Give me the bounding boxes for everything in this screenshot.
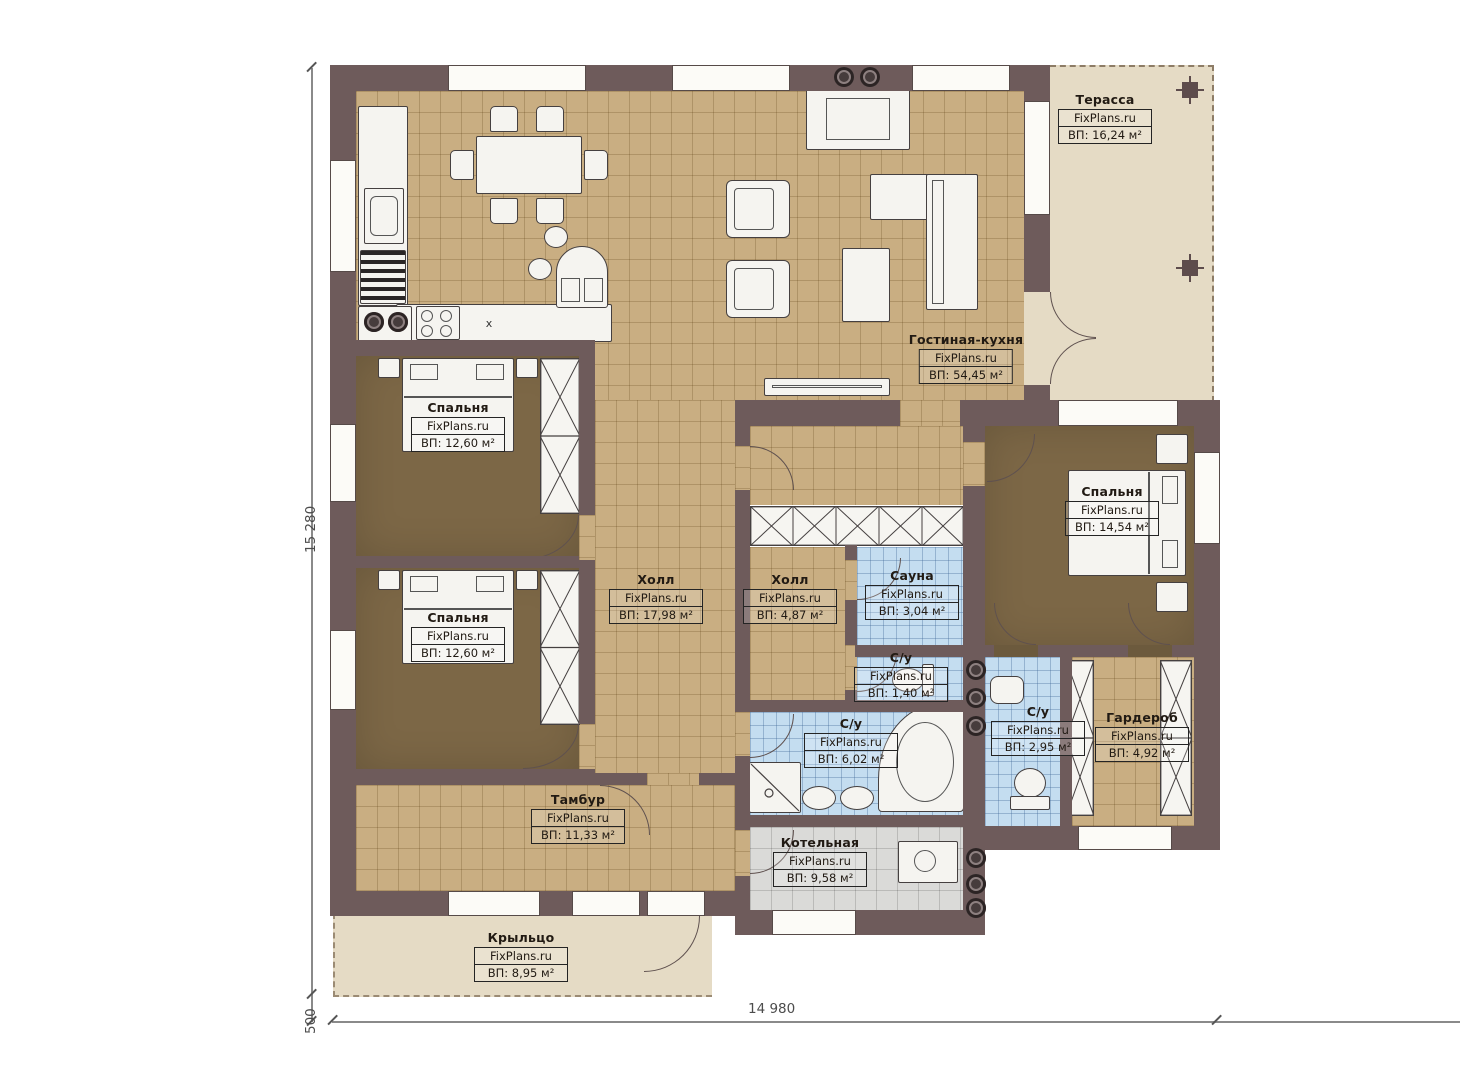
armchair-cushion [734,268,774,310]
room-label-vestibule: Тамбур FixPlans.ruВП: 11,33 м² [531,792,625,844]
brand-watermark: FixPlans.ru [866,586,958,603]
brand-watermark: FixPlans.ru [992,722,1084,739]
sauna-door-threshold [845,560,857,600]
wall-segment [845,600,857,645]
wall-segment [963,426,985,442]
window [1024,101,1050,215]
window [330,630,356,710]
wall-segment [1024,385,1050,400]
room-label-wc-2: С/у FixPlans.ruВП: 2,95 м² [991,704,1085,756]
wall-segment [1038,645,1128,657]
kitchen-sink-basin [370,196,398,236]
burner-icon [388,312,408,332]
window [1058,400,1178,426]
room-name: Котельная [773,835,867,850]
brand-watermark: FixPlans.ru [412,628,504,645]
front-door-threshold [647,891,705,916]
room-area: ВП: 8,95 м² [475,965,567,981]
wall-segment [356,556,579,568]
terrace-door-threshold [1024,290,1050,385]
nightstand [516,358,538,378]
room-label-hall-small: Холл FixPlans.ruВП: 4,87 м² [743,572,837,624]
bedroom2-door-threshold [579,724,595,769]
nightstand [1156,434,1188,464]
window [572,891,640,916]
column-axis-line [1189,254,1191,282]
wall-segment [1024,215,1050,292]
room-name: Гостиная-кухня [909,332,1023,347]
room-name: С/у [991,704,1085,719]
riser-pipe-icon [966,716,986,736]
column-axis-line [1189,76,1191,104]
hall-corridor-door [735,446,750,490]
riser-pipe-icon [966,660,986,680]
window [1194,452,1220,544]
room-label-hall-main: Холл FixPlans.ruВП: 17,98 м² [609,572,703,624]
room-name: Холл [609,572,703,587]
room-label-living-kitchen: Гостиная-кухня FixPlans.ruВП: 54,45 м² [909,332,1023,384]
room-name: Тамбур [531,792,625,807]
window [912,65,1010,91]
room-area: ВП: 14,54 м² [1066,519,1158,535]
brand-watermark: FixPlans.ru [610,590,702,607]
chimney-flue-icon [834,67,854,87]
shower-diagonal [749,762,801,813]
wardrobe-cabinet [540,570,580,725]
hall-closet-row [750,506,964,546]
wall-segment [963,645,994,657]
wall-segment [747,815,965,827]
chair [490,106,518,132]
room-name: Спальня [411,400,505,415]
brand-watermark: FixPlans.ru [774,853,866,870]
pillow [476,576,504,592]
room-area: ВП: 6,02 м² [805,751,897,767]
wardrobe-cabinet [540,358,580,514]
dimension-label-offset: 500 [303,1008,319,1034]
nightstand [378,358,400,378]
chair [490,198,518,224]
booth-cushion [584,278,603,302]
fireplace-hearth [826,98,890,140]
wall-segment [845,545,857,560]
wall-segment [595,773,647,785]
wall-segment [356,340,595,356]
burner-icon [421,325,433,337]
vestibule-door-threshold [647,773,699,785]
chimney-flue-icon [860,67,880,87]
wall-segment [579,560,595,724]
bedroom1-door-threshold [579,515,595,560]
dimension-tick [1211,1015,1221,1025]
room-area: ВП: 4,87 м² [744,607,836,623]
bathtub-basin [896,722,954,802]
dimension-label-height: 15 280 [303,506,319,553]
window [448,891,540,916]
room-label-bedroom-2: Спальня FixPlans.ruВП: 12,60 м² [411,610,505,662]
wall-segment [963,486,985,657]
riser-pipe-icon [966,848,986,868]
burner-icon [421,310,433,322]
pillow [410,576,438,592]
brand-watermark: FixPlans.ru [744,590,836,607]
brand-watermark: FixPlans.ru [475,948,567,965]
bath-door-threshold [735,712,750,756]
chair [584,150,608,180]
room-area: ВП: 9,58 м² [774,870,866,886]
bedroom3-door-threshold [963,442,985,486]
room-label-boiler: Котельная FixPlans.ruВП: 9,58 м² [773,835,867,887]
toilet-bowl [1014,768,1046,798]
room-name: Гардероб [1095,710,1189,725]
room-name: Сауна [865,568,959,583]
bathroom-sink [990,676,1024,704]
dimension-label-width: 14 980 [748,1001,795,1017]
wc2-door-threshold [994,645,1038,657]
floor-plan: x [0,0,1473,1080]
wall-segment [735,876,750,910]
brand-watermark: FixPlans.ru [920,350,1012,367]
stool [528,258,552,280]
wall-segment [735,400,900,426]
brand-watermark: FixPlans.ru [1059,110,1151,127]
room-area: ВП: 4,92 м² [1096,745,1188,761]
room-area: ВП: 54,45 м² [920,367,1012,383]
toilet-tank [1010,796,1050,810]
room-name: Холл [743,572,837,587]
armchair-cushion [734,188,774,230]
room-label-bathroom: С/у FixPlans.ruВП: 6,02 м² [804,716,898,768]
window [448,65,586,91]
room-area: ВП: 2,95 м² [992,739,1084,755]
room-name: Крыльцо [474,930,568,945]
pillow [1162,540,1178,568]
stool [544,226,568,248]
room-label-sauna: Сауна FixPlans.ruВП: 3,04 м² [865,568,959,620]
room-label-porch: Крыльцо FixPlans.ruВП: 8,95 м² [474,930,568,982]
room-label-wc-small: С/у FixPlans.ruВП: 1,40 м² [854,650,948,702]
room-label-wardrobe: Гардероб FixPlans.ruВП: 4,92 м² [1095,710,1189,762]
wall-segment [1024,91,1050,101]
riser-pipe-icon [966,874,986,894]
wall-segment [1172,645,1220,657]
wall-segment [963,657,985,826]
chair [536,106,564,132]
room-label-terrace: Терасса FixPlans.ruВП: 16,24 м² [1058,92,1152,144]
room-area: ВП: 1,40 м² [855,685,947,701]
pillow [410,364,438,380]
boiler-door-threshold [735,830,750,876]
riser-pipe-icon [966,688,986,708]
bathroom-sink [840,786,874,810]
dimension-tick [327,1015,337,1025]
brand-watermark: FixPlans.ru [1066,502,1158,519]
window [772,910,856,935]
burner-icon [440,325,452,337]
room-name: С/у [804,716,898,731]
nightstand [516,570,538,590]
wall-segment [579,340,595,515]
tv-bench-line [772,385,882,388]
window [330,424,356,502]
sink-x-mark: x [466,304,512,342]
brand-watermark: FixPlans.ru [412,418,504,435]
room-name: Спальня [1065,484,1159,499]
room-name: С/у [854,650,948,665]
window [330,160,356,272]
dining-table [476,136,582,194]
window [672,65,790,91]
wardrobe-door-threshold [1128,645,1172,657]
room-area: ВП: 3,04 м² [866,603,958,619]
room-label-bedroom-3: Спальня FixPlans.ruВП: 14,54 м² [1065,484,1159,536]
room-name: Терасса [1058,92,1152,107]
window [1078,826,1172,850]
wall-segment [356,769,595,785]
radiator-icon [360,250,406,304]
room-area: ВП: 17,98 м² [610,607,702,623]
riser-pipe-icon [966,898,986,918]
brand-watermark: FixPlans.ru [855,668,947,685]
nightstand [378,570,400,590]
room-area: ВП: 12,60 м² [412,435,504,451]
chair [536,198,564,224]
brand-watermark: FixPlans.ru [805,734,897,751]
room-name: Спальня [411,610,505,625]
pillow [476,364,504,380]
blanket-line [404,396,512,398]
burner-icon [440,310,452,322]
room-area: ВП: 12,60 м² [412,645,504,661]
booth-cushion [561,278,580,302]
pillow [1162,476,1178,504]
opening-living-corridor [900,400,960,426]
room-area: ВП: 16,24 м² [1059,127,1151,143]
boiler-dial [914,850,936,872]
wall-segment [735,426,750,446]
bathroom-sink [802,786,836,810]
room-area: ВП: 11,33 м² [532,827,624,843]
brand-watermark: FixPlans.ru [532,810,624,827]
coffee-table [842,248,890,322]
chair [450,150,474,180]
burner-icon [364,312,384,332]
room-label-bedroom-1: Спальня FixPlans.ruВП: 12,60 м² [411,400,505,452]
brand-watermark: FixPlans.ru [1096,728,1188,745]
sofa-armrest [932,180,944,304]
dimension-line-bottom [332,1021,1460,1023]
